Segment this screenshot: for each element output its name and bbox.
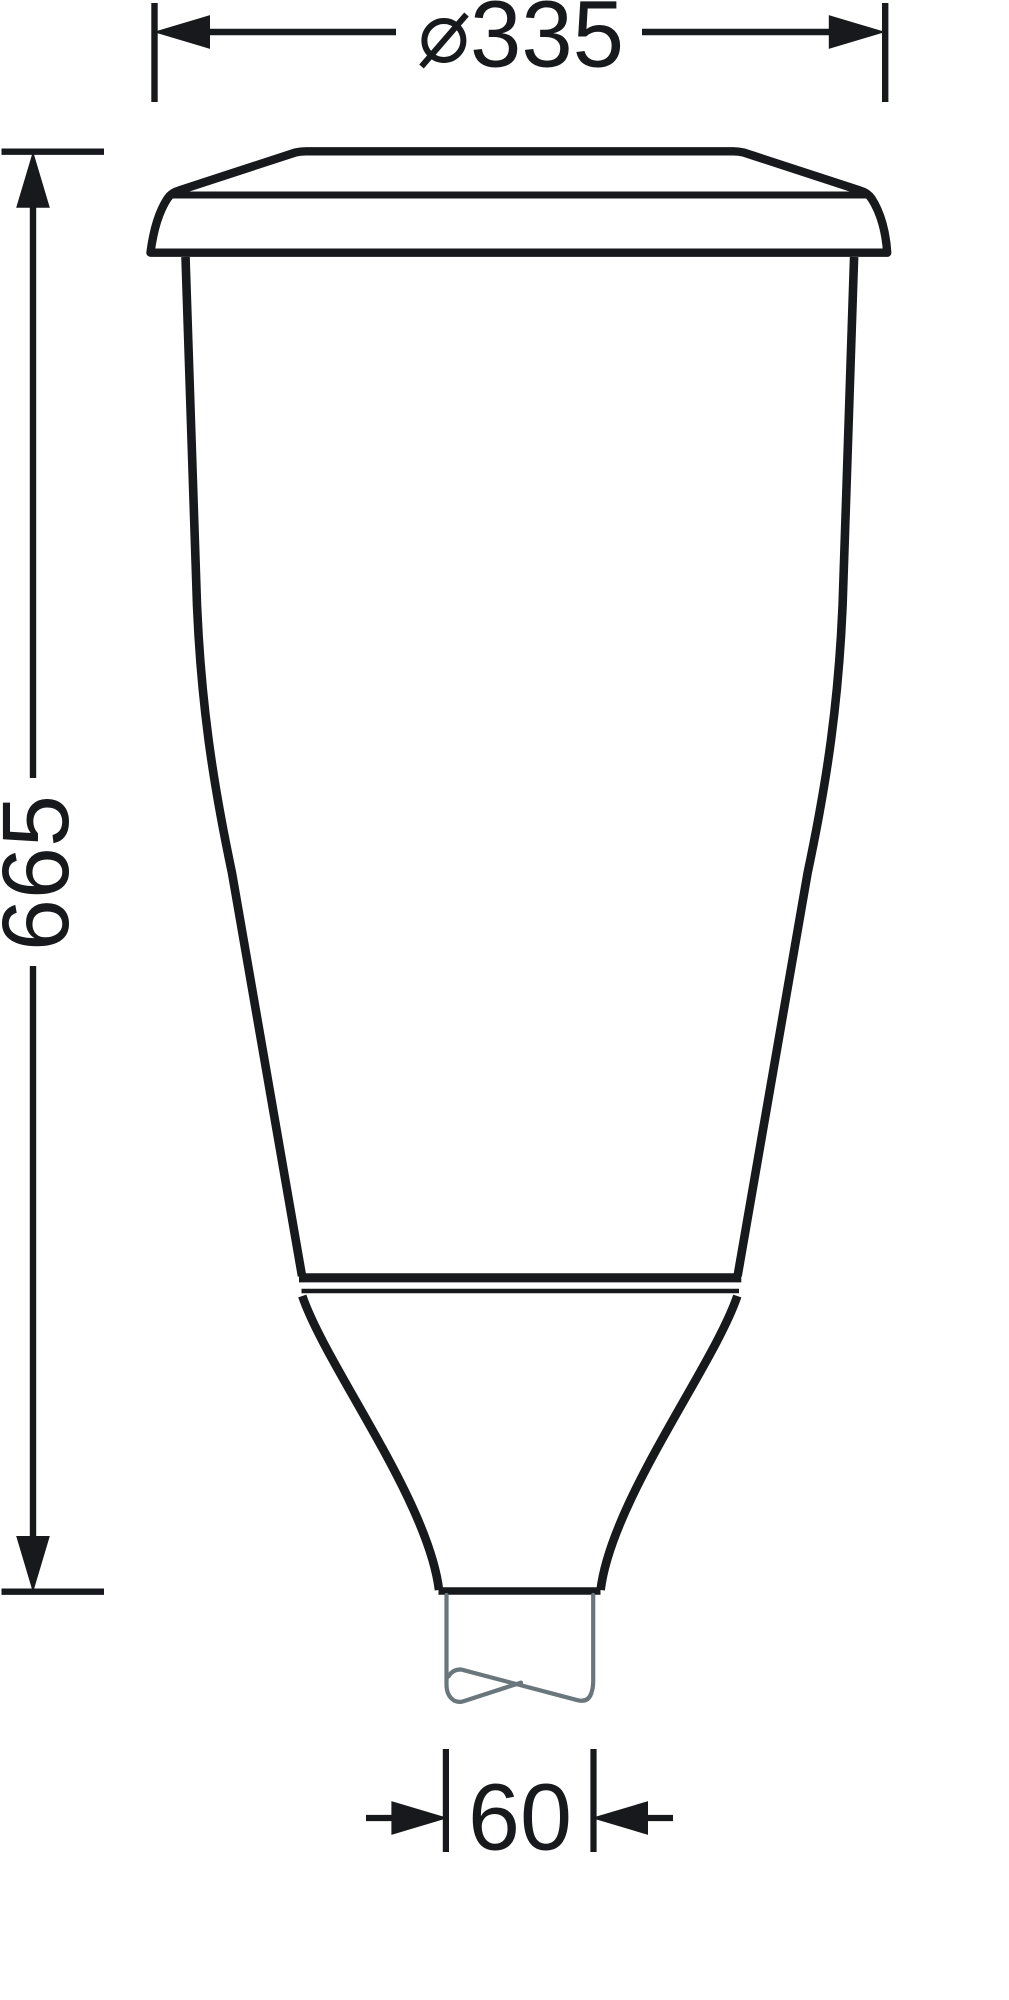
svg-text:335: 335 [470, 0, 624, 88]
svg-text:60: 60 [468, 1765, 572, 1871]
svg-text:665: 665 [0, 795, 89, 951]
